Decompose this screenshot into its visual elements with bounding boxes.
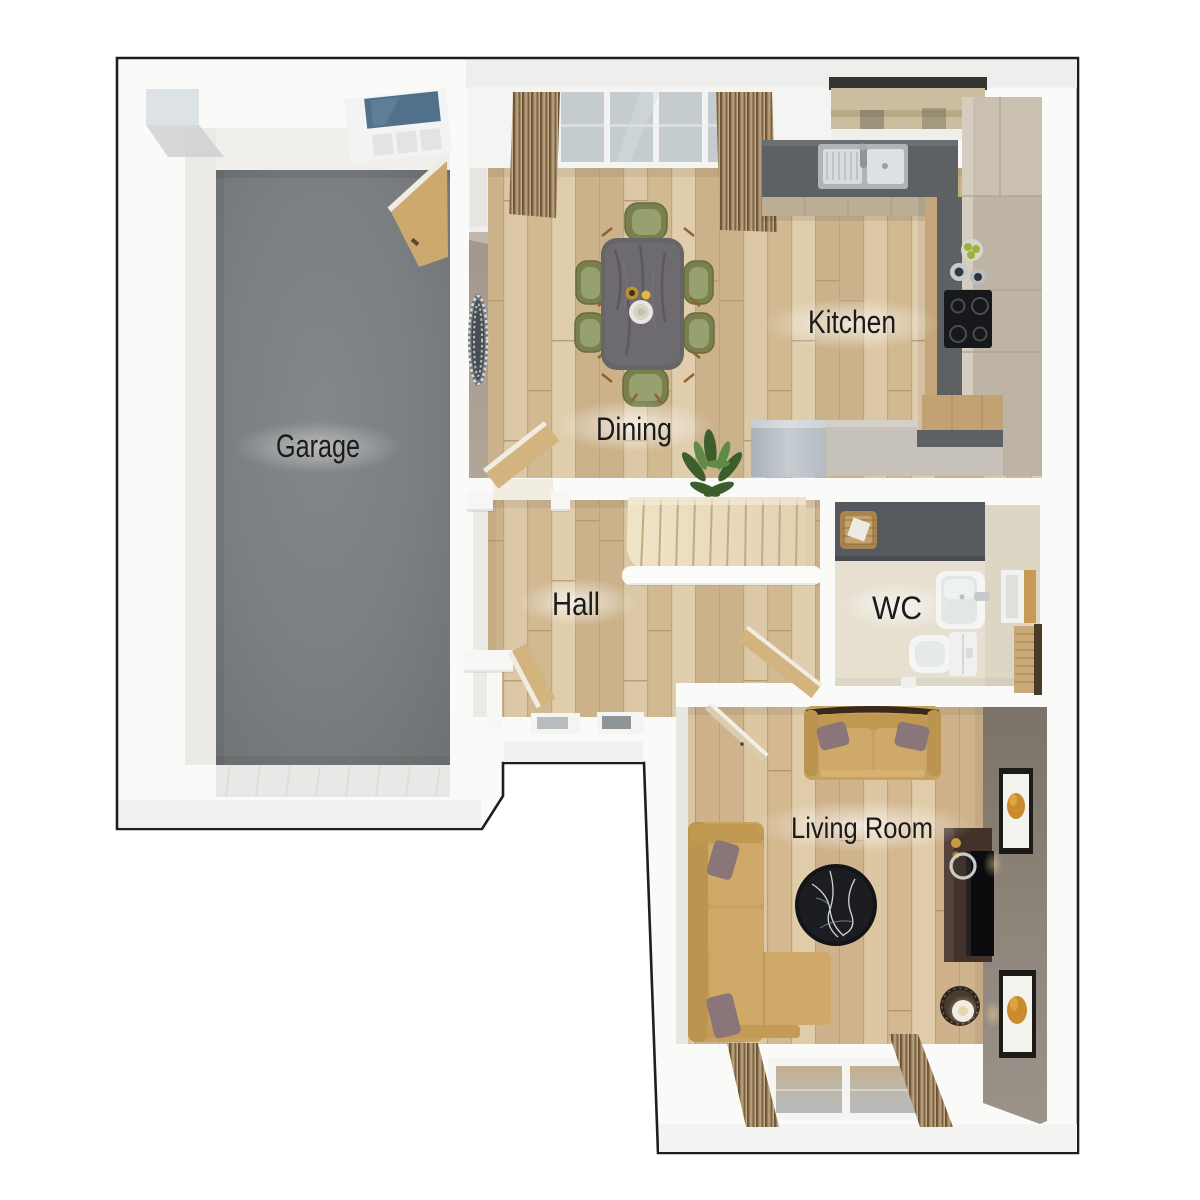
svg-text:WC: WC — [872, 590, 922, 626]
svg-text:Living Room: Living Room — [791, 812, 933, 845]
svg-text:Hall: Hall — [552, 586, 600, 622]
svg-text:Garage: Garage — [276, 428, 360, 464]
svg-text:Kitchen: Kitchen — [808, 304, 896, 340]
svg-text:Dining: Dining — [596, 411, 672, 447]
